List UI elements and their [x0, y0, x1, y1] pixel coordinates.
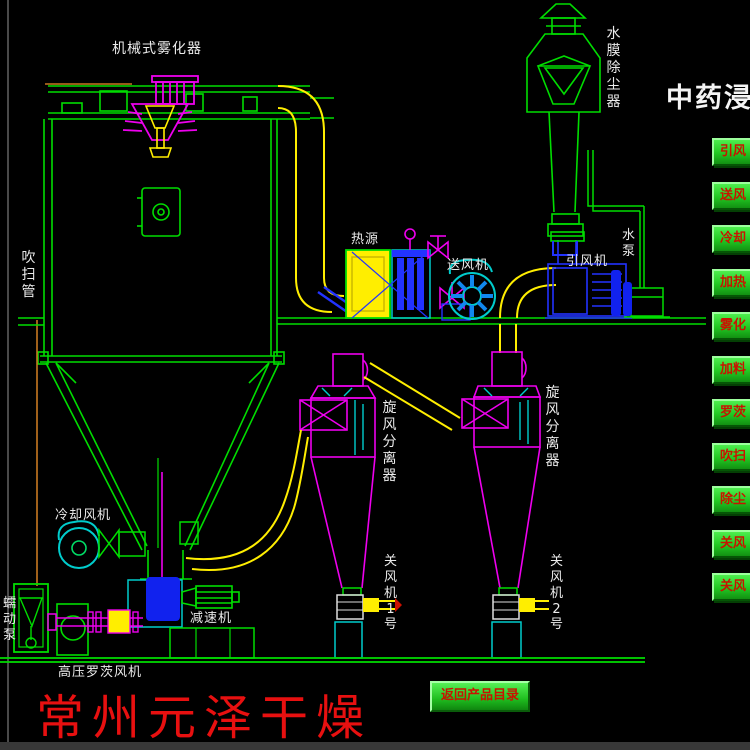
cyclone-separator-1 — [300, 354, 375, 588]
dust-collector-label: 水膜除尘器 — [606, 26, 621, 111]
reducer-motor — [182, 586, 239, 608]
heat-source-label: 热源 — [351, 228, 379, 247]
induced-fan-label: 引风机 — [566, 250, 608, 269]
panel-button-atomize[interactable]: 雾化 — [712, 312, 750, 340]
panel-button-feeding[interactable]: 加料 — [712, 356, 750, 384]
cyclone-separator-2 — [462, 352, 540, 588]
cad-screen: 机械式雾化器 水膜除尘器 吹扫管 热源 送风机 引风机 水泵 旋风分离器 旋风分… — [0, 0, 750, 750]
pump-motors — [611, 270, 632, 316]
heat-source — [346, 250, 390, 318]
inspection-door — [137, 188, 180, 236]
peristaltic-pump-label: 蠕动泵 — [2, 596, 17, 644]
cyclone1-label: 旋风分离器 — [382, 400, 397, 485]
back-to-catalog-button[interactable]: 返回产品目录 — [430, 681, 530, 712]
panel-button-supply-fan[interactable]: 送风 — [712, 182, 750, 210]
platform-line — [277, 318, 706, 324]
purge-pipe-label: 吹扫管 — [21, 250, 36, 301]
panel-button-roots[interactable]: 罗茨 — [712, 399, 750, 427]
cooling-fan — [59, 521, 198, 568]
panel-button-induced-fan[interactable]: 引风 — [712, 138, 750, 166]
reducer-label: 减速机 — [190, 607, 232, 626]
panel-button-airlock1[interactable]: 关风 — [712, 530, 750, 558]
cyclone2-label: 旋风分离器 — [545, 385, 560, 470]
panel-button-heating[interactable]: 加热 — [712, 269, 750, 297]
panel-button-purge[interactable]: 吹扫 — [712, 443, 750, 471]
process-flow-drawing — [0, 0, 750, 750]
hot-air-pipe — [278, 86, 344, 312]
airlock2-label: 关风机2号 — [549, 554, 564, 633]
page-title: 中药浸膏 — [666, 76, 750, 115]
roots-blower — [57, 604, 88, 655]
purge-pipe — [18, 318, 44, 325]
atomizer-label: 机械式雾化器 — [112, 38, 202, 58]
airlock1-label: 关风机1号 — [383, 554, 398, 633]
company-watermark: 常州元泽干燥 — [36, 678, 372, 748]
feed-tank — [14, 584, 48, 652]
rotary-airlock-2 — [492, 588, 549, 658]
panel-button-cooling[interactable]: 冷却 — [712, 225, 750, 253]
cooling-fan-label: 冷却风机 — [55, 504, 111, 523]
pressure-gauge — [405, 229, 415, 250]
supply-fan-label: 送风机 — [447, 254, 489, 273]
product-transfer-pipes — [186, 363, 460, 570]
valve-top — [428, 236, 448, 258]
panel-button-dedust[interactable]: 除尘 — [712, 486, 750, 514]
panel-button-airlock2[interactable]: 关风 — [712, 573, 750, 601]
water-pump-label: 水泵 — [621, 228, 636, 260]
